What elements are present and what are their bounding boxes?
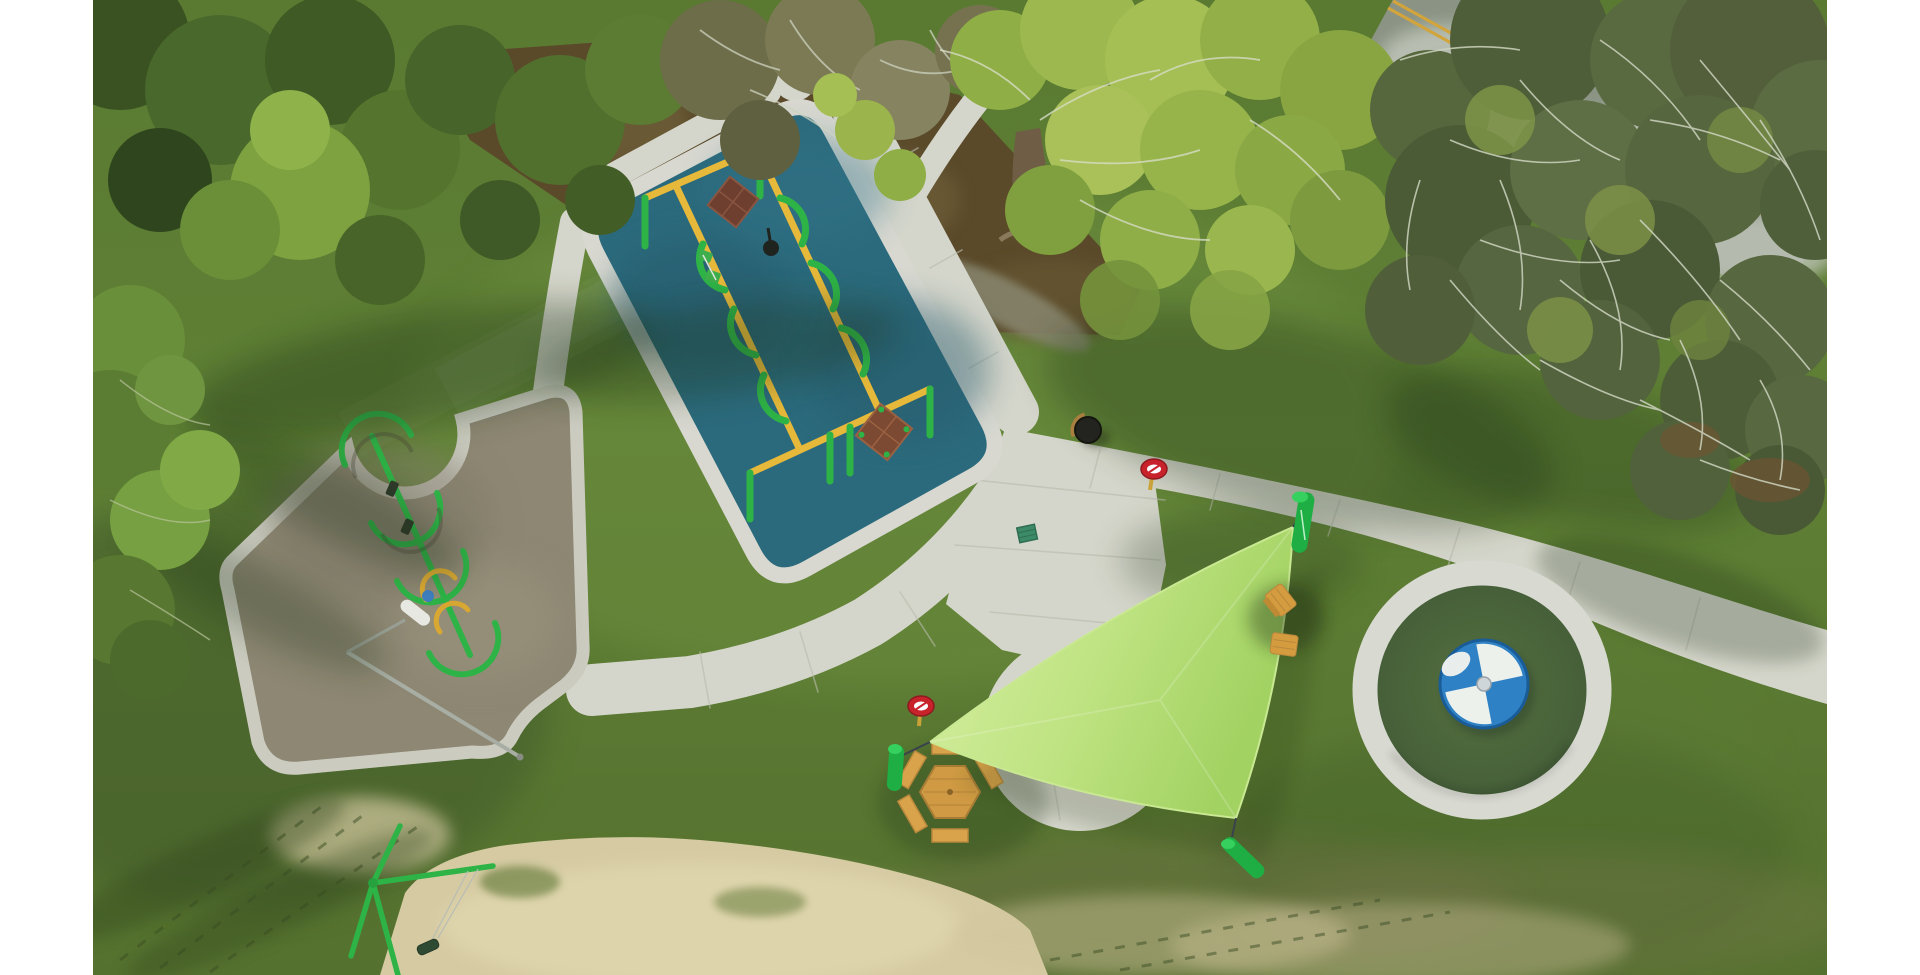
drain-grate: [1017, 524, 1038, 542]
spinner-pad: [1365, 573, 1599, 807]
spinner-hub: [1477, 677, 1491, 691]
lawn-chair-2: [1270, 632, 1299, 656]
aerial-park-photo: [0, 0, 1920, 975]
blue-seat: [422, 590, 434, 602]
photo: [0, 0, 1890, 975]
screenshot-canvas: [0, 0, 1920, 975]
